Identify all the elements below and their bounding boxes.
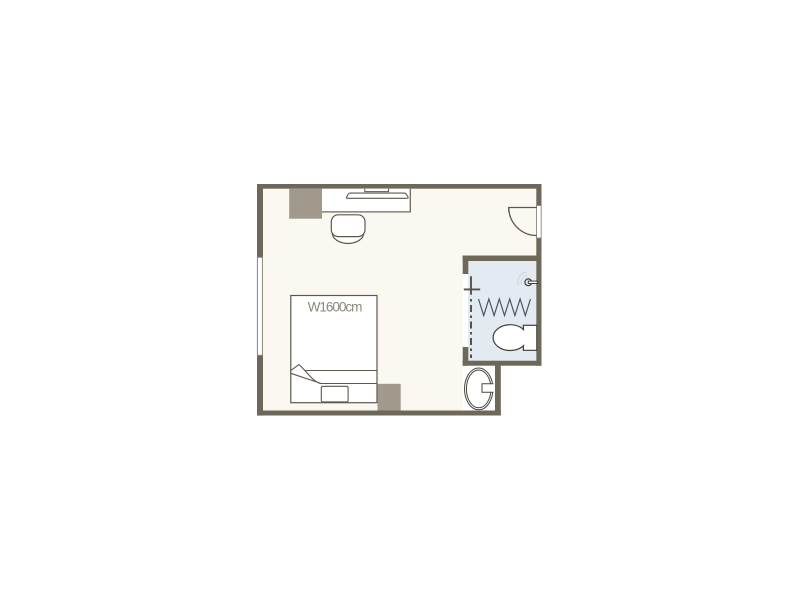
svg-text:W1600cm: W1600cm: [308, 300, 363, 315]
